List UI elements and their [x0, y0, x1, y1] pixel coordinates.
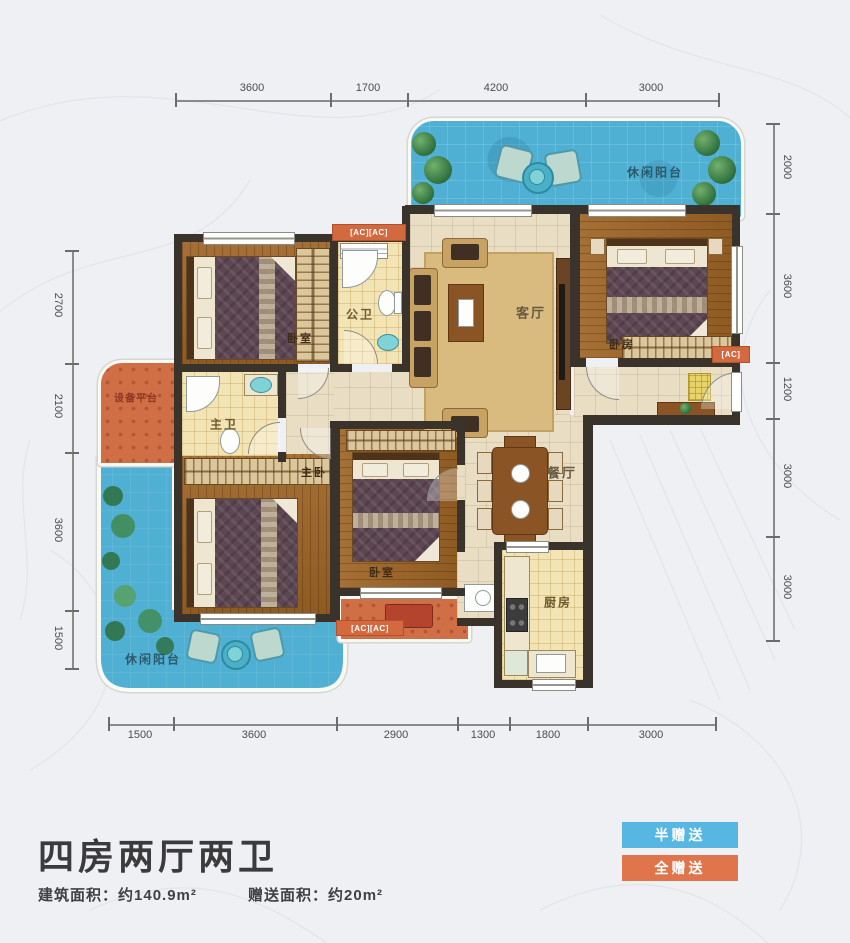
dim-line-top: [175, 100, 718, 102]
dim-tick: [766, 213, 780, 215]
ac-badge-top-label: [AC][AC]: [350, 228, 388, 237]
entry-door-leaf: [731, 372, 742, 412]
label-equipment: 设备平台: [114, 390, 158, 405]
label-balcony-top: 休闲阳台: [627, 164, 683, 181]
nightstand: [590, 238, 605, 255]
wall: [174, 364, 182, 622]
label-balcony-bl: 休闲阳台: [125, 651, 181, 668]
plant: [708, 156, 736, 184]
gift-area-label: 赠送面积：: [248, 887, 328, 904]
toilet-tank: [394, 292, 402, 314]
dim-tick: [65, 250, 79, 252]
wall: [570, 213, 580, 367]
bed: [352, 452, 440, 562]
dim-tick: [330, 93, 332, 107]
dining-table: [492, 447, 548, 535]
dining-chair: [548, 480, 563, 502]
built-area-label: 建筑面积：: [38, 887, 118, 904]
wall: [330, 238, 338, 364]
dim-left-2: 2100: [52, 376, 64, 436]
page-title: 四房两厅两卫: [38, 828, 278, 880]
ac-badge-bottom-label: [AC][AC]: [351, 624, 389, 633]
dim-left-3: 3600: [52, 500, 64, 560]
plant: [692, 182, 716, 206]
legend-half-gift-label: 半赠送: [655, 825, 706, 845]
window: [203, 232, 295, 245]
patio-chair: [249, 626, 286, 663]
wall: [174, 364, 298, 372]
wall: [338, 364, 352, 372]
coffee-table: [448, 284, 484, 342]
dim-left-4: 1500: [52, 608, 64, 668]
dim-tick: [65, 610, 79, 612]
wall: [174, 614, 202, 622]
dim-tick: [65, 668, 79, 670]
dim-tick: [766, 362, 780, 364]
nightstand: [708, 238, 723, 255]
dim-tick: [766, 418, 780, 420]
dim-tick: [715, 717, 717, 731]
dim-top-2: 1700: [338, 82, 398, 94]
dim-line-bottom: [108, 724, 715, 726]
dim-top-3: 4200: [466, 82, 526, 94]
wall: [457, 500, 465, 552]
wall: [546, 542, 588, 550]
label-guest-bath: 公卫: [346, 306, 374, 323]
equipment-platform-zone: [98, 360, 180, 466]
kitchen-sliding-door: [506, 541, 549, 553]
dim-left-1: 2700: [52, 275, 64, 335]
dim-tick: [407, 93, 409, 107]
dim-tick: [766, 536, 780, 538]
dim-right-5: 3000: [781, 557, 793, 617]
dim-right-2: 3600: [781, 256, 793, 316]
wardrobe: [346, 430, 456, 451]
label-living: 客厅: [516, 303, 546, 322]
armchair: [442, 238, 488, 268]
ac-badge-right-label: [AC]: [722, 350, 741, 359]
plant: [694, 130, 720, 156]
dim-bottom-3: 2900: [366, 729, 426, 741]
wall: [174, 234, 182, 372]
plant: [680, 403, 691, 414]
sliding-door: [434, 204, 532, 217]
dining-chair: [477, 480, 492, 502]
dim-tick: [587, 717, 589, 731]
wall: [334, 421, 465, 429]
dim-top-1: 3600: [222, 82, 282, 94]
ac-badge-right: [AC]: [712, 346, 750, 363]
window: [360, 587, 442, 599]
wall: [334, 588, 362, 596]
dim-line-left: [72, 250, 74, 668]
dim-line-right: [773, 123, 775, 640]
bed: [606, 238, 708, 344]
wall: [457, 618, 502, 626]
bed: [186, 256, 296, 360]
dim-tick: [585, 93, 587, 107]
ac-badge-top: [AC][AC]: [332, 224, 406, 241]
dim-top-4: 3000: [621, 82, 681, 94]
gift-area-stat: 赠送面积：约20m²: [248, 884, 383, 905]
kitchen-sink: [536, 654, 566, 673]
wall: [392, 364, 410, 372]
label-kitchen: 厨房: [544, 594, 572, 611]
patio-table-top: [227, 646, 243, 662]
plant: [412, 182, 434, 204]
wash-basin: [377, 334, 399, 351]
wall: [278, 452, 286, 462]
label-master-bath: 主卫: [210, 416, 238, 433]
window: [200, 613, 316, 625]
living-rug: [424, 252, 554, 432]
dining-chair: [477, 452, 492, 474]
wall: [583, 415, 740, 425]
patio-table-top: [529, 169, 545, 185]
wall: [583, 415, 593, 688]
dim-bottom-5: 1800: [518, 729, 578, 741]
dim-right-3: 1200: [781, 359, 793, 419]
wall: [438, 588, 465, 596]
tv-icon: [559, 284, 565, 380]
dim-tick: [718, 93, 720, 107]
label-dining: 餐厅: [547, 463, 577, 482]
dim-right-1: 2000: [781, 137, 793, 197]
ac-badge-bottom: [AC][AC]: [336, 620, 404, 636]
dim-tick: [65, 452, 79, 454]
legend-full-gift: 全赠送: [622, 855, 738, 881]
dim-tick: [173, 717, 175, 731]
plant: [412, 132, 436, 156]
floorplan-canvas: [AC][AC] [AC] [AC][AC] 休闲阳台 卧室 公卫 客厅 卧房 …: [0, 0, 850, 943]
dining-chair: [548, 508, 563, 530]
label-master-bed: 主卧: [301, 464, 327, 480]
dim-bottom-1: 1500: [110, 729, 170, 741]
patio-chair: [185, 628, 222, 665]
dim-tick: [175, 93, 177, 107]
wall: [494, 542, 502, 688]
fridge: [504, 650, 528, 676]
window: [588, 204, 686, 217]
wall: [570, 358, 586, 367]
dim-bottom-6: 3000: [621, 729, 681, 741]
stove: [506, 598, 528, 632]
dim-bottom-2: 3600: [224, 729, 284, 741]
window: [532, 679, 576, 691]
wall: [278, 372, 286, 418]
dim-tick: [336, 717, 338, 731]
label-bedroom-mid: 卧室: [369, 564, 395, 580]
dim-right-4: 3000: [781, 446, 793, 506]
dim-tick: [766, 640, 780, 642]
wall: [330, 364, 338, 372]
legend-full-gift-label: 全赠送: [655, 858, 706, 878]
washing-machine: [464, 584, 498, 612]
dining-chair: [477, 508, 492, 530]
gift-area-value: 约20m²: [328, 887, 383, 904]
legend-half-gift: 半赠送: [622, 822, 738, 848]
dim-tick: [766, 123, 780, 125]
dim-bottom-4: 1300: [453, 729, 513, 741]
plant: [424, 156, 452, 184]
label-bedroom-r: 卧房: [609, 336, 635, 352]
label-bedroom-tl: 卧室: [287, 330, 313, 346]
wash-basin: [250, 377, 272, 393]
built-area-stat: 建筑面积：约140.9m²: [38, 884, 197, 905]
window: [731, 246, 743, 334]
bed: [186, 498, 298, 608]
sofa: [409, 268, 438, 388]
built-area-value: 约140.9m²: [118, 887, 197, 904]
dim-tick: [65, 363, 79, 365]
